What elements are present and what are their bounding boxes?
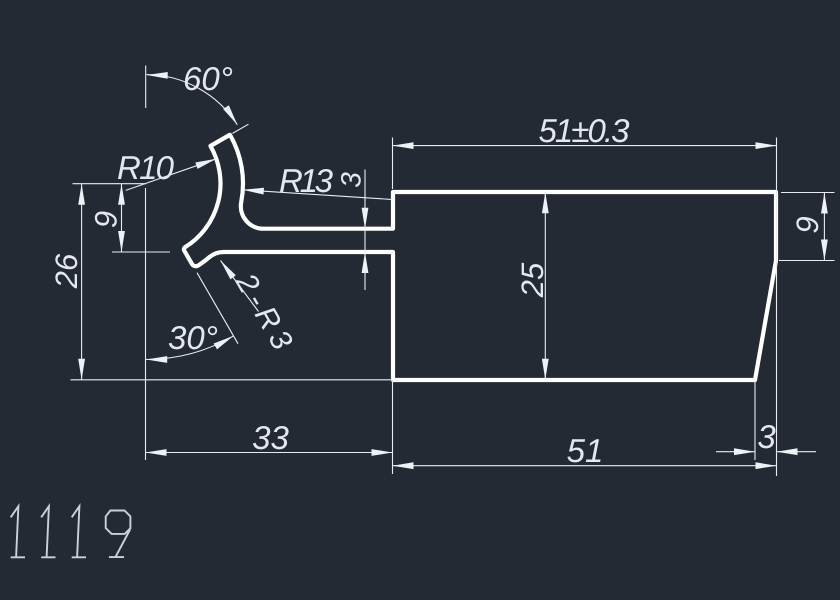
svg-text:33: 33 xyxy=(252,419,289,456)
svg-text:26: 26 xyxy=(49,253,84,289)
svg-text:60°: 60° xyxy=(183,60,233,97)
svg-text:9: 9 xyxy=(790,216,825,233)
svg-text:3: 3 xyxy=(757,418,776,455)
svg-text:30°: 30° xyxy=(168,319,218,356)
svg-text:R13: R13 xyxy=(279,162,334,199)
svg-text:3: 3 xyxy=(336,172,367,188)
svg-text:R10: R10 xyxy=(117,149,175,186)
svg-text:51: 51 xyxy=(567,432,604,469)
svg-text:25: 25 xyxy=(515,262,550,298)
svg-text:51±0.3: 51±0.3 xyxy=(539,112,631,149)
svg-text:9: 9 xyxy=(89,211,124,228)
